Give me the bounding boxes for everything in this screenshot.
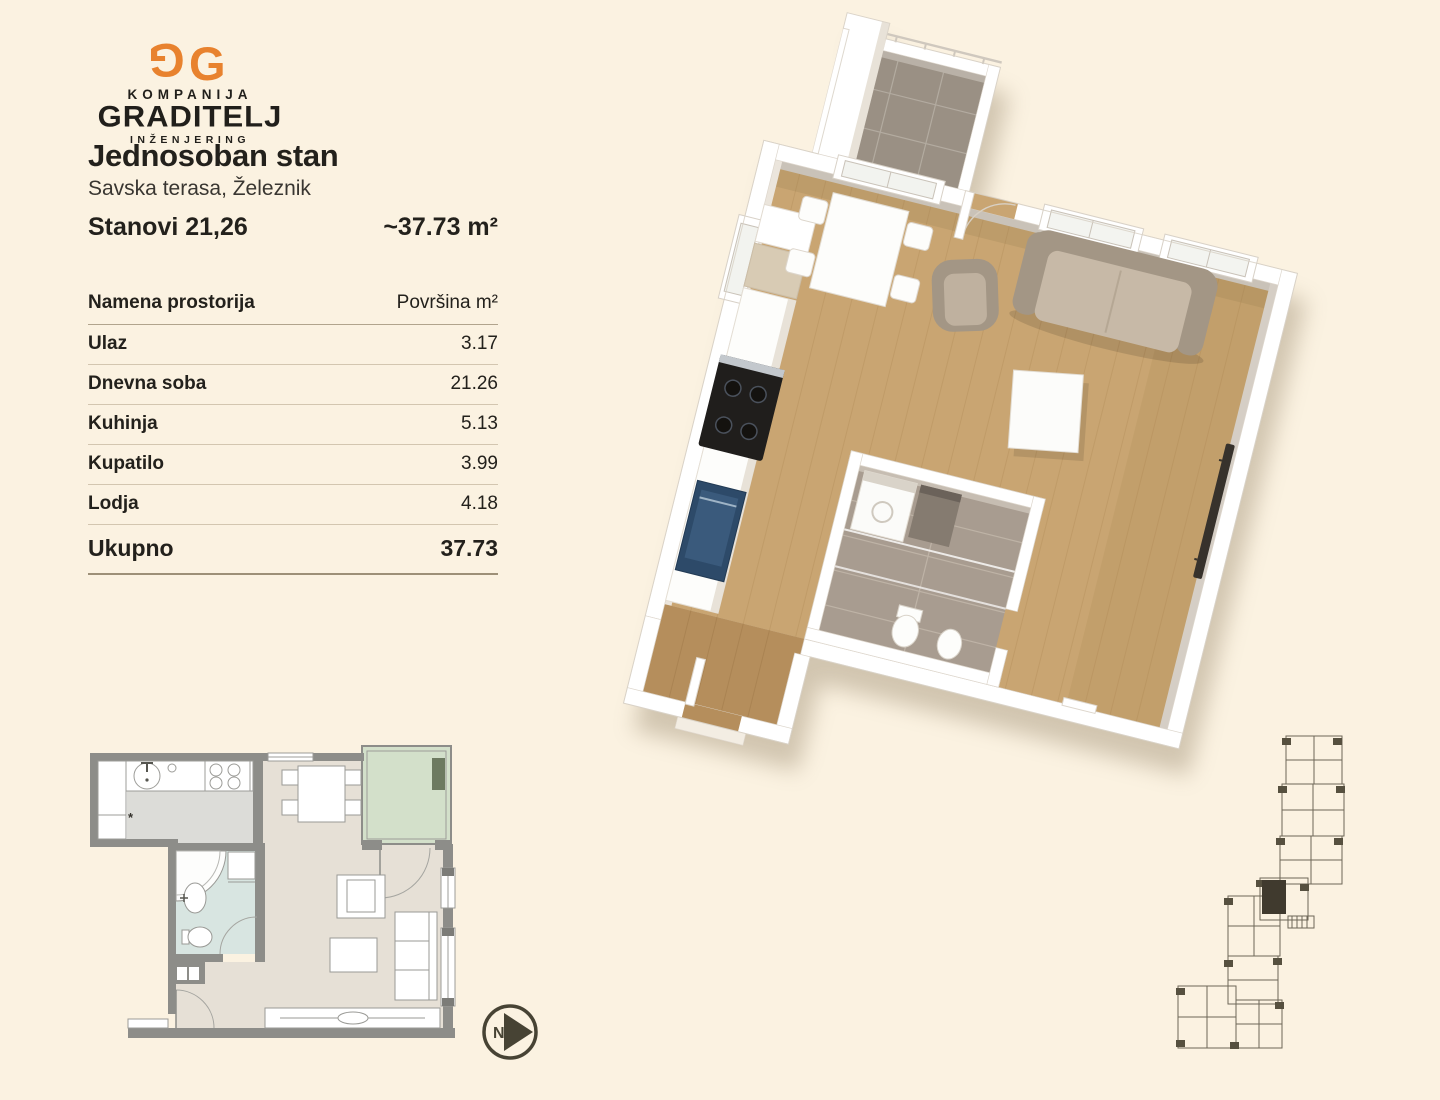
stairs-hatch — [1288, 916, 1314, 928]
monogram-left: G — [148, 40, 185, 86]
coffee-table-2d — [330, 938, 377, 972]
bathroom-2d — [168, 843, 265, 962]
row-value: 21.26 — [450, 373, 498, 395]
page-subtitle: Savska terasa, Železnik — [88, 177, 311, 201]
logo-line-graditelj: GRADITELJ — [84, 100, 296, 135]
logo-monogram-icon: G G — [142, 40, 238, 86]
unit-numbers: Stanovi 21,26 — [88, 213, 248, 242]
row-label: Kuhinja — [88, 413, 158, 435]
table-header-row: Namena prostorija Površina m² — [88, 284, 498, 325]
page-title: Jednosoban stan — [88, 138, 338, 174]
floor-plan-2d: * — [85, 742, 465, 1077]
sofa-2d — [395, 912, 437, 1000]
coffee-table — [1008, 370, 1090, 461]
north-arrow-icon: N — [478, 1000, 542, 1064]
row-value: 3.99 — [461, 453, 498, 475]
table-row: Kupatilo 3.99 — [88, 445, 498, 485]
radiator-2d — [265, 1008, 440, 1028]
row-value: 5.13 — [461, 413, 498, 435]
row-value: 4.18 — [461, 493, 498, 515]
total-label: Ukupno — [88, 535, 174, 562]
table-row: Dnevna soba 21.26 — [88, 365, 498, 405]
armchair — [931, 258, 999, 332]
top-window-2d — [268, 753, 313, 761]
table-row: Lodja 4.18 — [88, 485, 498, 525]
row-label: Dnevna soba — [88, 373, 206, 395]
company-logo: G G KOMPANIJA GRADITELJ INŽENJERING — [84, 40, 296, 146]
table-row: Kuhinja 5.13 — [88, 405, 498, 445]
building-key-plan — [1170, 728, 1370, 1058]
table-total-row: Ukupno 37.73 — [88, 525, 498, 575]
row-value: 3.17 — [461, 333, 498, 355]
right-windows-2d — [441, 868, 455, 1006]
highlighted-unit — [1262, 880, 1286, 914]
room-area-table: Namena prostorija Površina m² Ulaz 3.17 … — [88, 284, 498, 575]
armchair-2d — [337, 875, 385, 918]
row-label: Kupatilo — [88, 453, 164, 475]
table-row: Ulaz 3.17 — [88, 325, 498, 365]
monogram-right: G — [189, 40, 226, 86]
shaft-2d — [173, 962, 205, 984]
col-room-header: Namena prostorija — [88, 292, 255, 314]
unit-summary: Stanovi 21,26 ~37.73 m² — [88, 213, 498, 242]
col-area-header: Površina m² — [397, 292, 498, 314]
unit-total-area: ~37.73 m² — [383, 213, 498, 242]
compass-letter: N — [493, 1025, 505, 1042]
total-value: 37.73 — [440, 535, 498, 562]
row-label: Ulaz — [88, 333, 127, 355]
row-label: Lodja — [88, 493, 139, 515]
page: G G KOMPANIJA GRADITELJ INŽENJERING Jedn… — [0, 0, 1440, 1100]
compass-triangle — [504, 1013, 533, 1051]
